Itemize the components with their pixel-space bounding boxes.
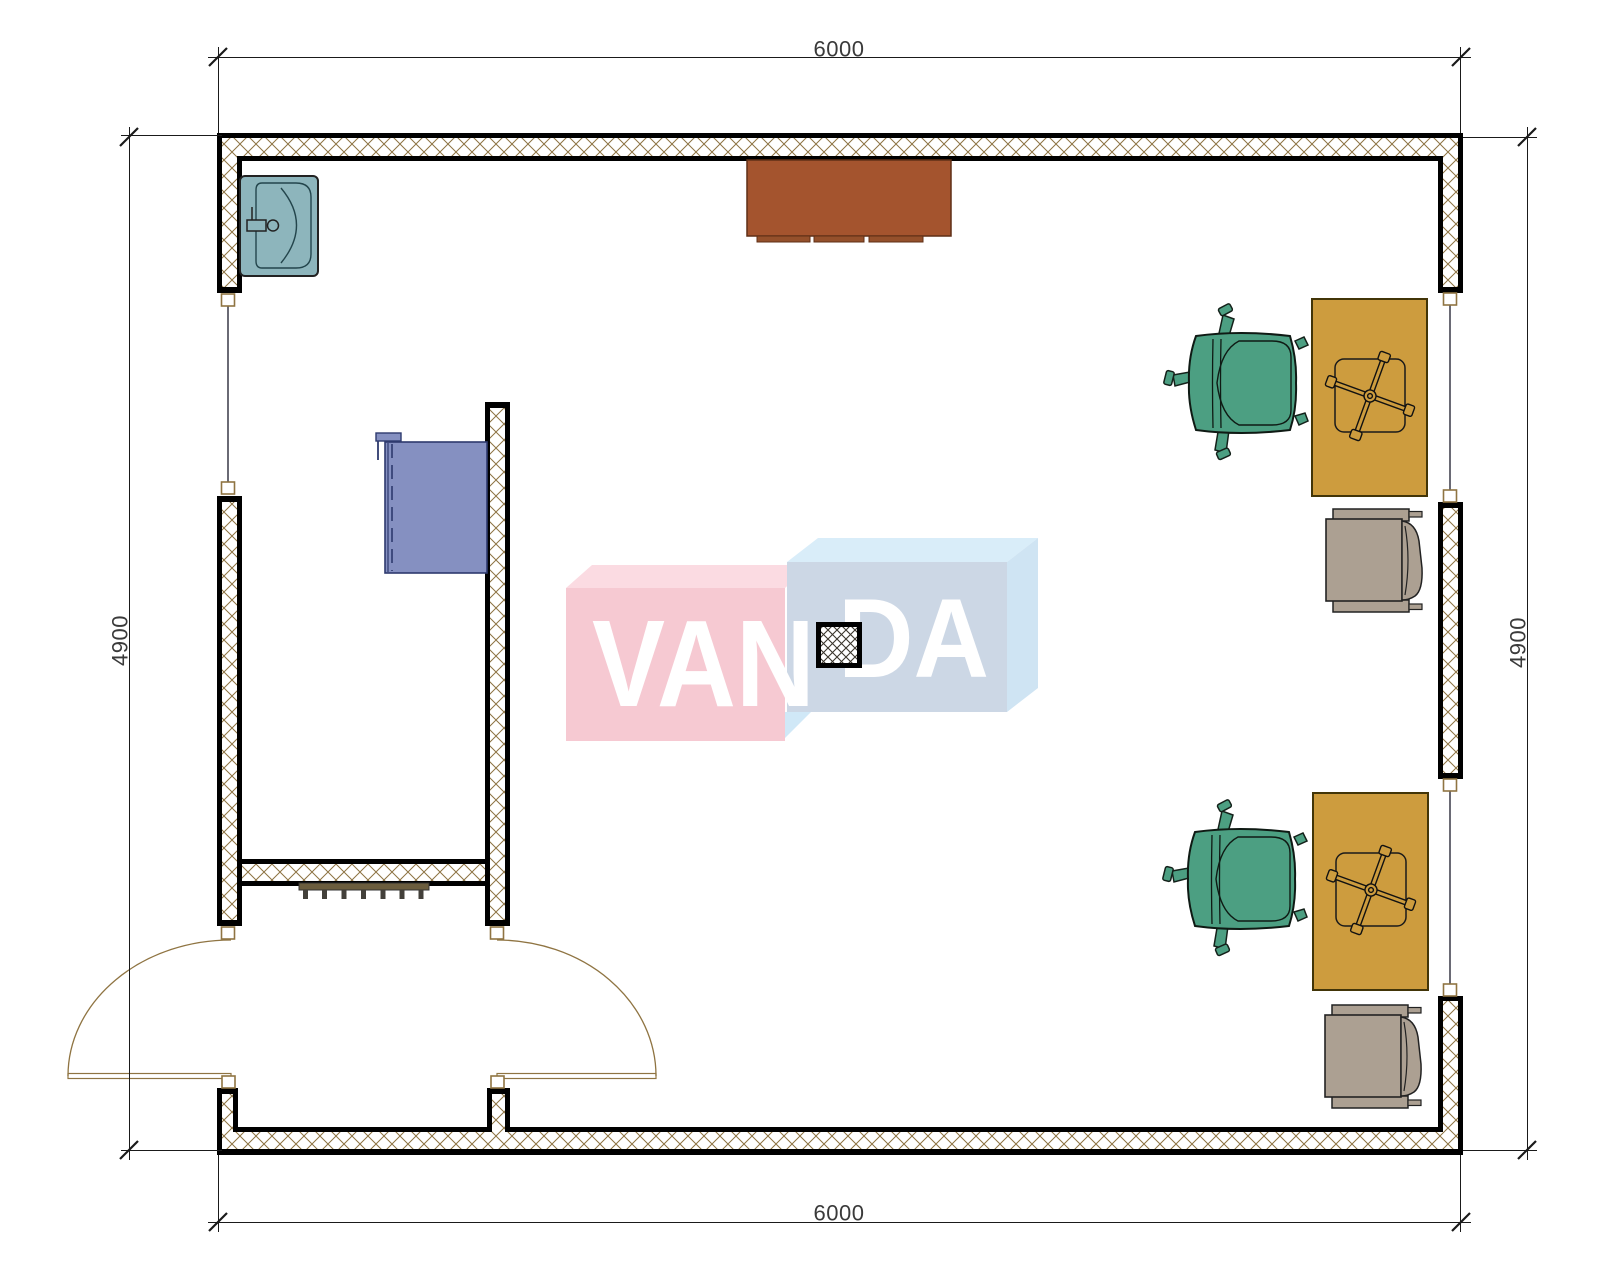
svg-text:4900: 4900 [108,615,133,666]
svg-text:6000: 6000 [814,37,865,62]
svg-text:4900: 4900 [1506,617,1531,668]
svg-text:VAN: VAN [592,596,815,733]
svg-text:6000: 6000 [814,1201,865,1226]
